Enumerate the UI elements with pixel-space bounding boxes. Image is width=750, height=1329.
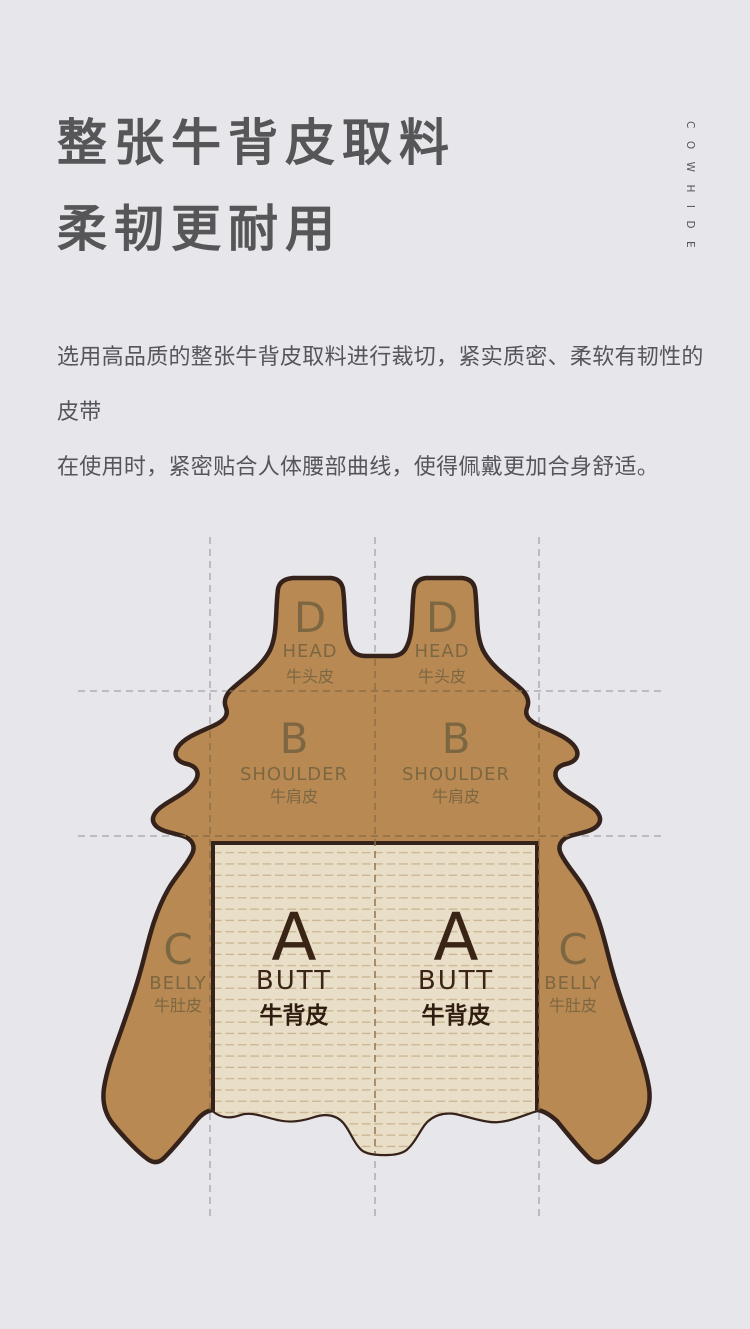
region-c-right-letter: C: [558, 925, 587, 974]
region-d-left-label-en: HEAD: [282, 641, 337, 662]
region-d-right-label-zh: 牛头皮: [418, 667, 466, 686]
page-title-line-1: 整张牛背皮取料: [57, 100, 456, 186]
region-a-right-label-zh: 牛背皮: [422, 1003, 491, 1029]
cowhide-cutting-diagram: D HEAD 牛头皮 D HEAD 牛头皮 B SHOULDER 牛肩皮 B S…: [0, 525, 750, 1229]
product-description: 选用高品质的整张牛背皮取料进行裁切，紧实质密、柔软有韧性的皮带 在使用时，紧密贴…: [57, 330, 717, 495]
region-d-left-letter: D: [294, 593, 326, 642]
region-a-right-label-en: BUTT: [418, 966, 494, 996]
region-b-left-letter: B: [280, 714, 309, 763]
region-b-left-label-zh: 牛肩皮: [270, 787, 318, 806]
region-b-right-letter: B: [442, 714, 471, 763]
region-c-right-label-zh: 牛肚皮: [549, 996, 597, 1015]
page-title-line-2: 柔韧更耐用: [57, 186, 456, 272]
region-a-right-letter: A: [433, 899, 478, 976]
description-line-1: 选用高品质的整张牛背皮取料进行裁切，紧实质密、柔软有韧性的皮带: [57, 330, 717, 440]
description-line-2: 在使用时，紧密贴合人体腰部曲线，使得佩戴更加合身舒适。: [57, 440, 717, 495]
region-c-left-letter: C: [163, 925, 192, 974]
region-d-left-label-zh: 牛头皮: [286, 667, 334, 686]
region-a-left-label-en: BUTT: [256, 966, 332, 996]
region-d-right-label-en: HEAD: [414, 641, 469, 662]
region-c-left-label-zh: 牛肚皮: [154, 996, 202, 1015]
region-b-right-label-en: SHOULDER: [402, 764, 510, 785]
region-c-left-label-en: BELLY: [149, 973, 206, 994]
region-c-right-label-en: BELLY: [544, 973, 601, 994]
region-d-right-letter: D: [426, 593, 458, 642]
product-detail-page: 整张牛背皮取料 柔韧更耐用 COWHIDE 选用高品质的整张牛背皮取料进行裁切，…: [0, 0, 750, 1329]
page-title: 整张牛背皮取料 柔韧更耐用: [57, 100, 456, 272]
cowhide-vertical-label: COWHIDE: [684, 121, 696, 260]
region-a-left-letter: A: [271, 899, 316, 976]
region-b-right-label-zh: 牛肩皮: [432, 787, 480, 806]
region-a-left-label-zh: 牛背皮: [260, 1003, 329, 1029]
region-b-left-label-en: SHOULDER: [240, 764, 348, 785]
